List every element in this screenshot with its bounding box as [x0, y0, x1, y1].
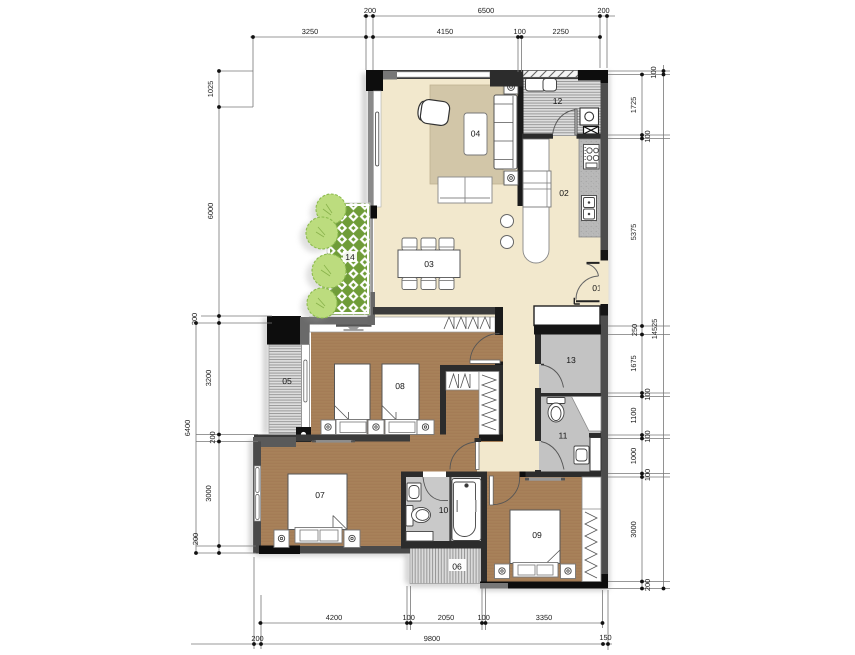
svg-text:100: 100 [643, 469, 652, 481]
svg-text:6400: 6400 [183, 420, 192, 436]
svg-text:3000: 3000 [204, 485, 213, 501]
svg-text:09: 09 [532, 530, 542, 540]
svg-text:100: 100 [403, 613, 415, 622]
svg-text:100: 100 [643, 388, 652, 400]
svg-text:08: 08 [395, 381, 405, 391]
svg-text:100: 100 [478, 613, 490, 622]
svg-text:200: 200 [597, 6, 609, 15]
svg-text:250: 250 [630, 324, 639, 336]
svg-text:1100: 1100 [629, 408, 638, 424]
svg-text:13: 13 [566, 355, 576, 365]
svg-text:04: 04 [471, 129, 481, 139]
svg-text:1000: 1000 [629, 448, 638, 464]
svg-text:200: 200 [364, 6, 376, 15]
svg-text:200: 200 [208, 431, 217, 443]
svg-text:1675: 1675 [629, 355, 638, 371]
svg-text:14: 14 [345, 252, 355, 262]
svg-text:200: 200 [251, 634, 263, 643]
svg-text:14525: 14525 [650, 319, 659, 340]
svg-text:12: 12 [553, 96, 563, 106]
svg-text:6500: 6500 [478, 6, 494, 15]
svg-text:3350: 3350 [536, 613, 552, 622]
svg-text:5375: 5375 [629, 224, 638, 240]
svg-text:4200: 4200 [326, 613, 342, 622]
svg-text:6000: 6000 [206, 203, 215, 219]
svg-text:05: 05 [282, 376, 292, 386]
svg-text:3000: 3000 [629, 521, 638, 537]
svg-text:100: 100 [643, 430, 652, 442]
svg-text:03: 03 [424, 259, 434, 269]
svg-text:100: 100 [643, 130, 652, 142]
svg-text:06: 06 [452, 562, 462, 572]
svg-text:1725: 1725 [629, 97, 638, 113]
svg-text:100: 100 [649, 66, 658, 78]
svg-text:200: 200 [190, 313, 199, 325]
svg-text:2250: 2250 [552, 27, 568, 36]
svg-text:100: 100 [514, 27, 526, 36]
svg-text:02: 02 [559, 188, 569, 198]
svg-text:4150: 4150 [437, 27, 453, 36]
svg-text:2050: 2050 [438, 613, 454, 622]
svg-text:10: 10 [439, 505, 449, 515]
svg-text:9800: 9800 [424, 634, 440, 643]
svg-text:1025: 1025 [206, 81, 215, 97]
svg-text:11: 11 [559, 431, 568, 441]
svg-text:200: 200 [643, 579, 652, 591]
svg-text:3250: 3250 [302, 27, 318, 36]
svg-text:3200: 3200 [204, 370, 213, 386]
svg-text:07: 07 [315, 490, 325, 500]
svg-text:150: 150 [599, 633, 611, 642]
svg-text:200: 200 [191, 533, 200, 545]
